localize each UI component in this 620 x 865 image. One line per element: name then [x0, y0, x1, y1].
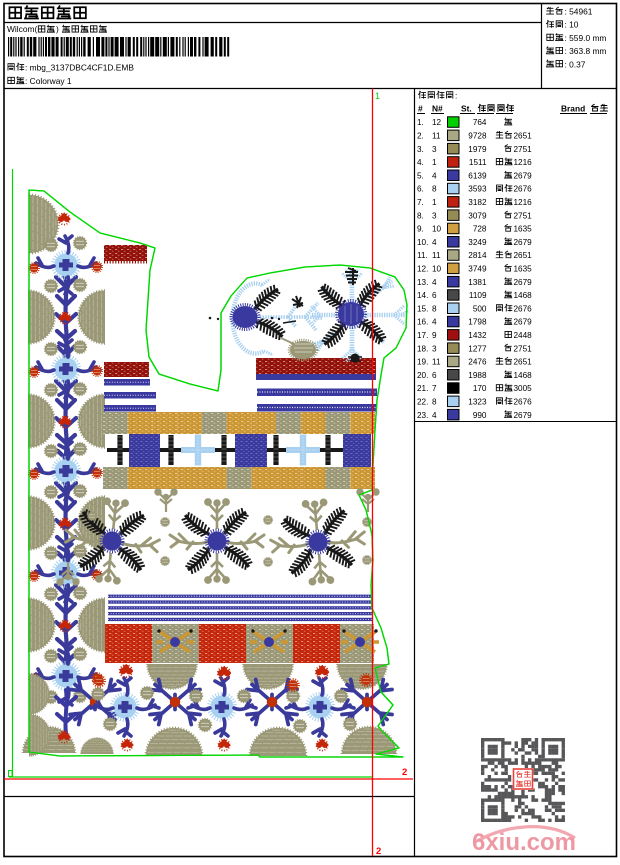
svg-text:1988: 1988 — [468, 371, 487, 380]
svg-text:10.: 10. — [417, 238, 428, 247]
svg-text:1216: 1216 — [514, 198, 533, 207]
svg-text:1109: 1109 — [469, 291, 487, 300]
svg-text:10: 10 — [432, 265, 442, 274]
svg-text:11: 11 — [432, 251, 441, 260]
svg-text:8: 8 — [432, 304, 437, 313]
svg-text:1277: 1277 — [468, 344, 487, 353]
svg-text:12.: 12. — [417, 265, 428, 274]
svg-text:Brand: Brand — [561, 104, 585, 114]
svg-text:1432: 1432 — [468, 331, 487, 340]
svg-text:6: 6 — [432, 291, 437, 300]
svg-text:12: 12 — [432, 118, 442, 127]
svg-text:23.: 23. — [417, 411, 428, 420]
svg-text::: : — [455, 91, 457, 101]
svg-text:2676: 2676 — [514, 398, 533, 407]
svg-text:: 559.0 mm: : 559.0 mm — [565, 33, 607, 43]
svg-text:1: 1 — [375, 91, 380, 101]
svg-text:17.: 17. — [417, 331, 428, 340]
svg-text:3593: 3593 — [468, 185, 487, 194]
svg-text:6: 6 — [432, 371, 437, 380]
svg-text:1635: 1635 — [514, 265, 533, 274]
svg-text:990: 990 — [473, 411, 487, 420]
svg-text:22.: 22. — [417, 398, 428, 407]
svg-text:3079: 3079 — [468, 211, 487, 220]
svg-text:2679: 2679 — [514, 238, 533, 247]
svg-text:2676: 2676 — [514, 185, 533, 194]
svg-text:9728: 9728 — [468, 132, 487, 141]
svg-text:9.: 9. — [417, 225, 424, 234]
svg-text:2814: 2814 — [468, 251, 487, 260]
svg-text:2676: 2676 — [514, 304, 533, 313]
svg-text:728: 728 — [473, 225, 487, 234]
svg-text:6.: 6. — [417, 185, 424, 194]
svg-text:1216: 1216 — [514, 158, 533, 167]
svg-text:2.: 2. — [417, 132, 424, 141]
svg-text:2: 2 — [376, 846, 381, 857]
svg-text:2751: 2751 — [514, 344, 533, 353]
svg-text:4: 4 — [432, 278, 437, 287]
svg-text:18.: 18. — [417, 344, 428, 353]
svg-text:1: 1 — [432, 158, 437, 167]
svg-text:16.: 16. — [417, 318, 428, 327]
svg-text:7: 7 — [432, 384, 437, 393]
svg-text:3: 3 — [432, 344, 437, 353]
svg-text:4: 4 — [432, 411, 437, 420]
svg-text:500: 500 — [473, 304, 487, 313]
svg-text:2651: 2651 — [514, 358, 533, 367]
svg-text:St.: St. — [461, 104, 472, 114]
svg-text:: 10: : 10 — [565, 20, 579, 30]
svg-text:13.: 13. — [417, 278, 428, 287]
svg-text:764: 764 — [473, 118, 487, 127]
svg-text:11: 11 — [432, 358, 441, 367]
svg-text:1323: 1323 — [468, 398, 487, 407]
svg-text:: Colorway 1: : Colorway 1 — [25, 76, 72, 86]
svg-text:10: 10 — [432, 225, 442, 234]
svg-text:8: 8 — [432, 398, 437, 407]
svg-text:2: 2 — [402, 767, 407, 778]
svg-text:: mbg_3137DBC4CF1D.EMB: : mbg_3137DBC4CF1D.EMB — [25, 63, 134, 73]
svg-text:: 0.37: : 0.37 — [565, 59, 586, 69]
svg-text:#: # — [418, 104, 423, 114]
svg-text:): ) — [56, 24, 59, 34]
svg-text:: 363.8 mm: : 363.8 mm — [565, 46, 607, 56]
svg-text:1511: 1511 — [469, 158, 487, 167]
svg-text:3249: 3249 — [468, 238, 487, 247]
svg-text:3182: 3182 — [468, 198, 487, 207]
svg-text:1468: 1468 — [514, 371, 533, 380]
svg-text:N#: N# — [432, 104, 443, 114]
svg-text:3: 3 — [432, 211, 437, 220]
svg-text:11.: 11. — [417, 251, 428, 260]
svg-text:3749: 3749 — [468, 265, 487, 274]
svg-text:1381: 1381 — [468, 278, 487, 287]
svg-text:3.: 3. — [417, 145, 424, 154]
svg-text:2679: 2679 — [514, 411, 533, 420]
svg-text:19.: 19. — [417, 358, 428, 367]
svg-text:4.: 4. — [417, 158, 424, 167]
svg-text:170: 170 — [473, 384, 487, 393]
svg-text:14.: 14. — [417, 291, 428, 300]
svg-text:1: 1 — [432, 198, 437, 207]
svg-text:1468: 1468 — [514, 291, 533, 300]
svg-text:3005: 3005 — [514, 384, 533, 393]
svg-text:6139: 6139 — [468, 171, 487, 180]
svg-text:3: 3 — [432, 145, 437, 154]
svg-text:4: 4 — [432, 171, 437, 180]
svg-text:2679: 2679 — [514, 318, 533, 327]
svg-text:11: 11 — [432, 132, 441, 141]
svg-text:: 54961: : 54961 — [565, 7, 593, 17]
svg-text:7.: 7. — [417, 198, 424, 207]
svg-text:Wilcom(: Wilcom( — [7, 24, 37, 34]
svg-text:2448: 2448 — [514, 331, 533, 340]
svg-text:9: 9 — [432, 331, 437, 340]
svg-text:4: 4 — [432, 318, 437, 327]
svg-text:2679: 2679 — [514, 278, 533, 287]
svg-text:2651: 2651 — [514, 132, 533, 141]
svg-text:21.: 21. — [417, 384, 428, 393]
svg-text:5.: 5. — [417, 171, 424, 180]
svg-text:1.: 1. — [417, 118, 424, 127]
svg-text:2751: 2751 — [514, 211, 533, 220]
svg-text:2751: 2751 — [514, 145, 533, 154]
svg-text:2476: 2476 — [468, 358, 487, 367]
svg-text:8: 8 — [432, 185, 437, 194]
svg-text:1798: 1798 — [468, 318, 487, 327]
svg-text:15.: 15. — [417, 304, 428, 313]
svg-text:20.: 20. — [417, 371, 428, 380]
svg-text:4: 4 — [432, 238, 437, 247]
svg-text:6xiu.com: 6xiu.com — [472, 829, 576, 856]
svg-text:1979: 1979 — [468, 145, 487, 154]
svg-text:1635: 1635 — [514, 225, 533, 234]
svg-text:2651: 2651 — [514, 251, 533, 260]
svg-text:2679: 2679 — [514, 171, 533, 180]
svg-text:8.: 8. — [417, 211, 424, 220]
